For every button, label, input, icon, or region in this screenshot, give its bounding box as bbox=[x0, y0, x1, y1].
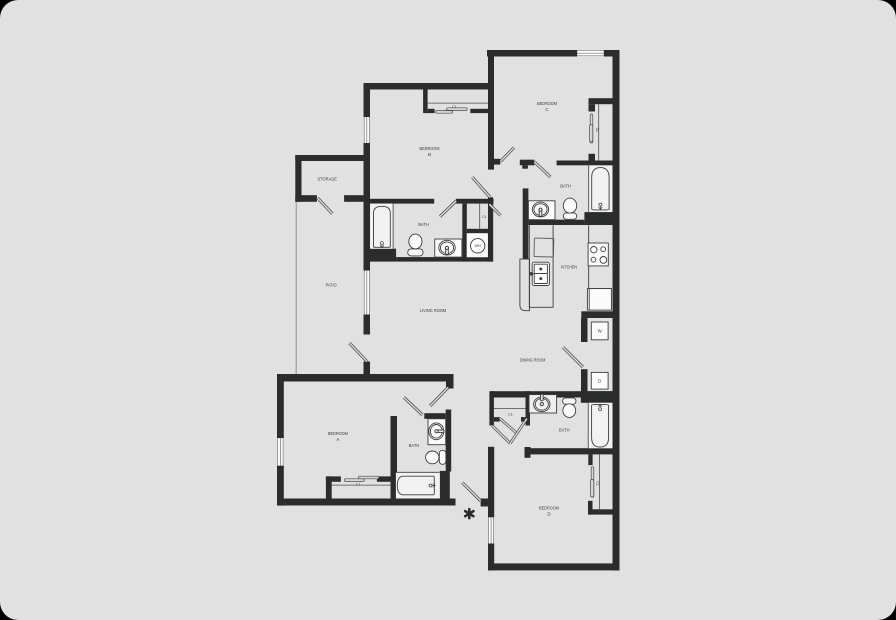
svg-text:CL: CL bbox=[482, 215, 487, 219]
svg-text:STORAGE: STORAGE bbox=[317, 176, 337, 181]
svg-text:D: D bbox=[547, 512, 551, 517]
svg-text:CL: CL bbox=[356, 483, 361, 487]
svg-text:BATH: BATH bbox=[560, 184, 571, 189]
svg-text:KITCHEN: KITCHEN bbox=[561, 265, 577, 270]
svg-text:CL: CL bbox=[595, 128, 599, 133]
svg-text:BEDROOM: BEDROOM bbox=[328, 431, 348, 436]
svg-text:BATH: BATH bbox=[559, 427, 570, 432]
svg-text:BEDROOM: BEDROOM bbox=[420, 146, 440, 151]
svg-text:CL: CL bbox=[596, 481, 600, 486]
svg-text:CL: CL bbox=[452, 105, 457, 109]
svg-text:BEDROOM: BEDROOM bbox=[539, 506, 559, 511]
svg-text:DINING ROOM: DINING ROOM bbox=[520, 357, 546, 362]
svg-text:B: B bbox=[428, 152, 431, 157]
svg-text:BATH: BATH bbox=[418, 222, 429, 227]
svg-text:W/H: W/H bbox=[475, 244, 482, 248]
svg-text:BATH: BATH bbox=[409, 443, 420, 448]
svg-text:BEDROOM: BEDROOM bbox=[537, 101, 557, 106]
svg-text:C: C bbox=[545, 107, 549, 112]
svg-text:PATIO: PATIO bbox=[326, 283, 337, 288]
svg-text:W: W bbox=[598, 329, 603, 334]
svg-text:LIVING ROOM: LIVING ROOM bbox=[420, 308, 447, 313]
svg-text:A: A bbox=[336, 437, 340, 442]
svg-text:CL: CL bbox=[508, 413, 513, 417]
